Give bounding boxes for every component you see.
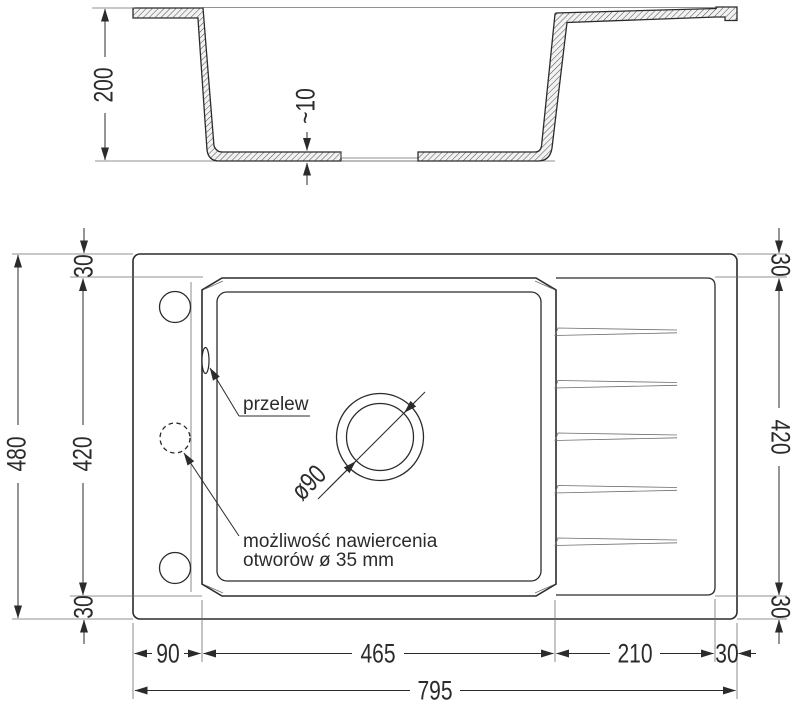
dim-overall-width-795: 795 xyxy=(135,676,736,706)
dim-drainer-width-210: 210 xyxy=(557,639,714,669)
dim-height-200: 200 xyxy=(89,8,135,160)
dim-right-edge-label: 30 xyxy=(715,639,738,669)
dim-rim-bottom-left-label: 30 xyxy=(69,595,99,618)
overflow-label: przelew xyxy=(243,394,309,415)
dim-bowl-depth-right-label: 420 xyxy=(765,419,795,454)
plan-view: ø90 przelew możliwość nawiercenia otworó… xyxy=(133,254,737,619)
drill-note-line2: otworów ø 35 mm xyxy=(243,550,394,571)
tap-hole-top xyxy=(160,292,191,323)
technical-drawing: 200 ~10 xyxy=(0,0,800,714)
dim-height-label: 200 xyxy=(89,67,119,102)
dim-bowl-width-465: 465 xyxy=(204,639,554,669)
dim-rim-bottom-right-30: 30 xyxy=(765,595,795,644)
dim-bowl-depth-420-left: 420 xyxy=(68,279,98,596)
optional-tap-hole-dashed xyxy=(160,423,190,453)
dim-bottom-thickness-label: ~10 xyxy=(291,88,321,124)
section-drain-recess xyxy=(341,152,418,161)
groove-line xyxy=(555,381,677,389)
overflow-leader xyxy=(210,368,239,416)
dim-overall-depth-label: 480 xyxy=(2,436,32,471)
section-view: 200 ~10 xyxy=(89,7,737,185)
dim-rim-bottom-left-30: 30 xyxy=(69,595,99,644)
section-left-wall xyxy=(133,8,341,161)
dim-overall-depth-480: 480 xyxy=(2,255,32,618)
dim-rim-top-left-label: 30 xyxy=(69,254,99,277)
drill-note-leader xyxy=(184,453,239,536)
section-right-wall-drainboard xyxy=(418,7,737,161)
plan-dimensions: 480 30 420 30 30 420 xyxy=(2,228,795,706)
groove-line xyxy=(555,328,677,336)
top-surface-inset xyxy=(556,278,715,595)
dim-drainer-width-label: 210 xyxy=(617,639,652,669)
sink-technical-drawing-page: 200 ~10 xyxy=(0,0,800,714)
dim-left-offset-90: 90 xyxy=(135,639,201,669)
dim-bowl-width-label: 465 xyxy=(360,639,395,669)
dim-rim-top-right-30: 30 xyxy=(765,228,795,277)
dim-drain-diameter-label: ø90 xyxy=(286,460,333,507)
dim-rim-top-left-30: 30 xyxy=(69,228,99,278)
tap-hole-bottom xyxy=(160,553,191,584)
dim-rim-top-right-label: 30 xyxy=(765,253,795,276)
sink-outer-edge xyxy=(133,254,737,619)
dim-overall-width-label: 795 xyxy=(417,676,452,706)
dim-right-edge-30: 30 xyxy=(715,639,756,669)
dim-left-offset-label: 90 xyxy=(156,639,179,669)
overflow-slot xyxy=(202,348,209,374)
dim-bowl-depth-420-right: 420 xyxy=(765,279,795,596)
overflow: przelew xyxy=(202,348,310,417)
drainboard-grooves xyxy=(555,328,677,546)
drill-note-line1: możliwość nawiercenia xyxy=(243,531,438,552)
groove-line xyxy=(555,538,677,546)
dim-bottom-thickness: ~10 xyxy=(291,88,321,185)
groove-line xyxy=(555,486,677,494)
dim-rim-bottom-right-label: 30 xyxy=(765,595,795,618)
groove-line xyxy=(555,433,677,441)
dim-bowl-depth-left-label: 420 xyxy=(68,436,98,471)
